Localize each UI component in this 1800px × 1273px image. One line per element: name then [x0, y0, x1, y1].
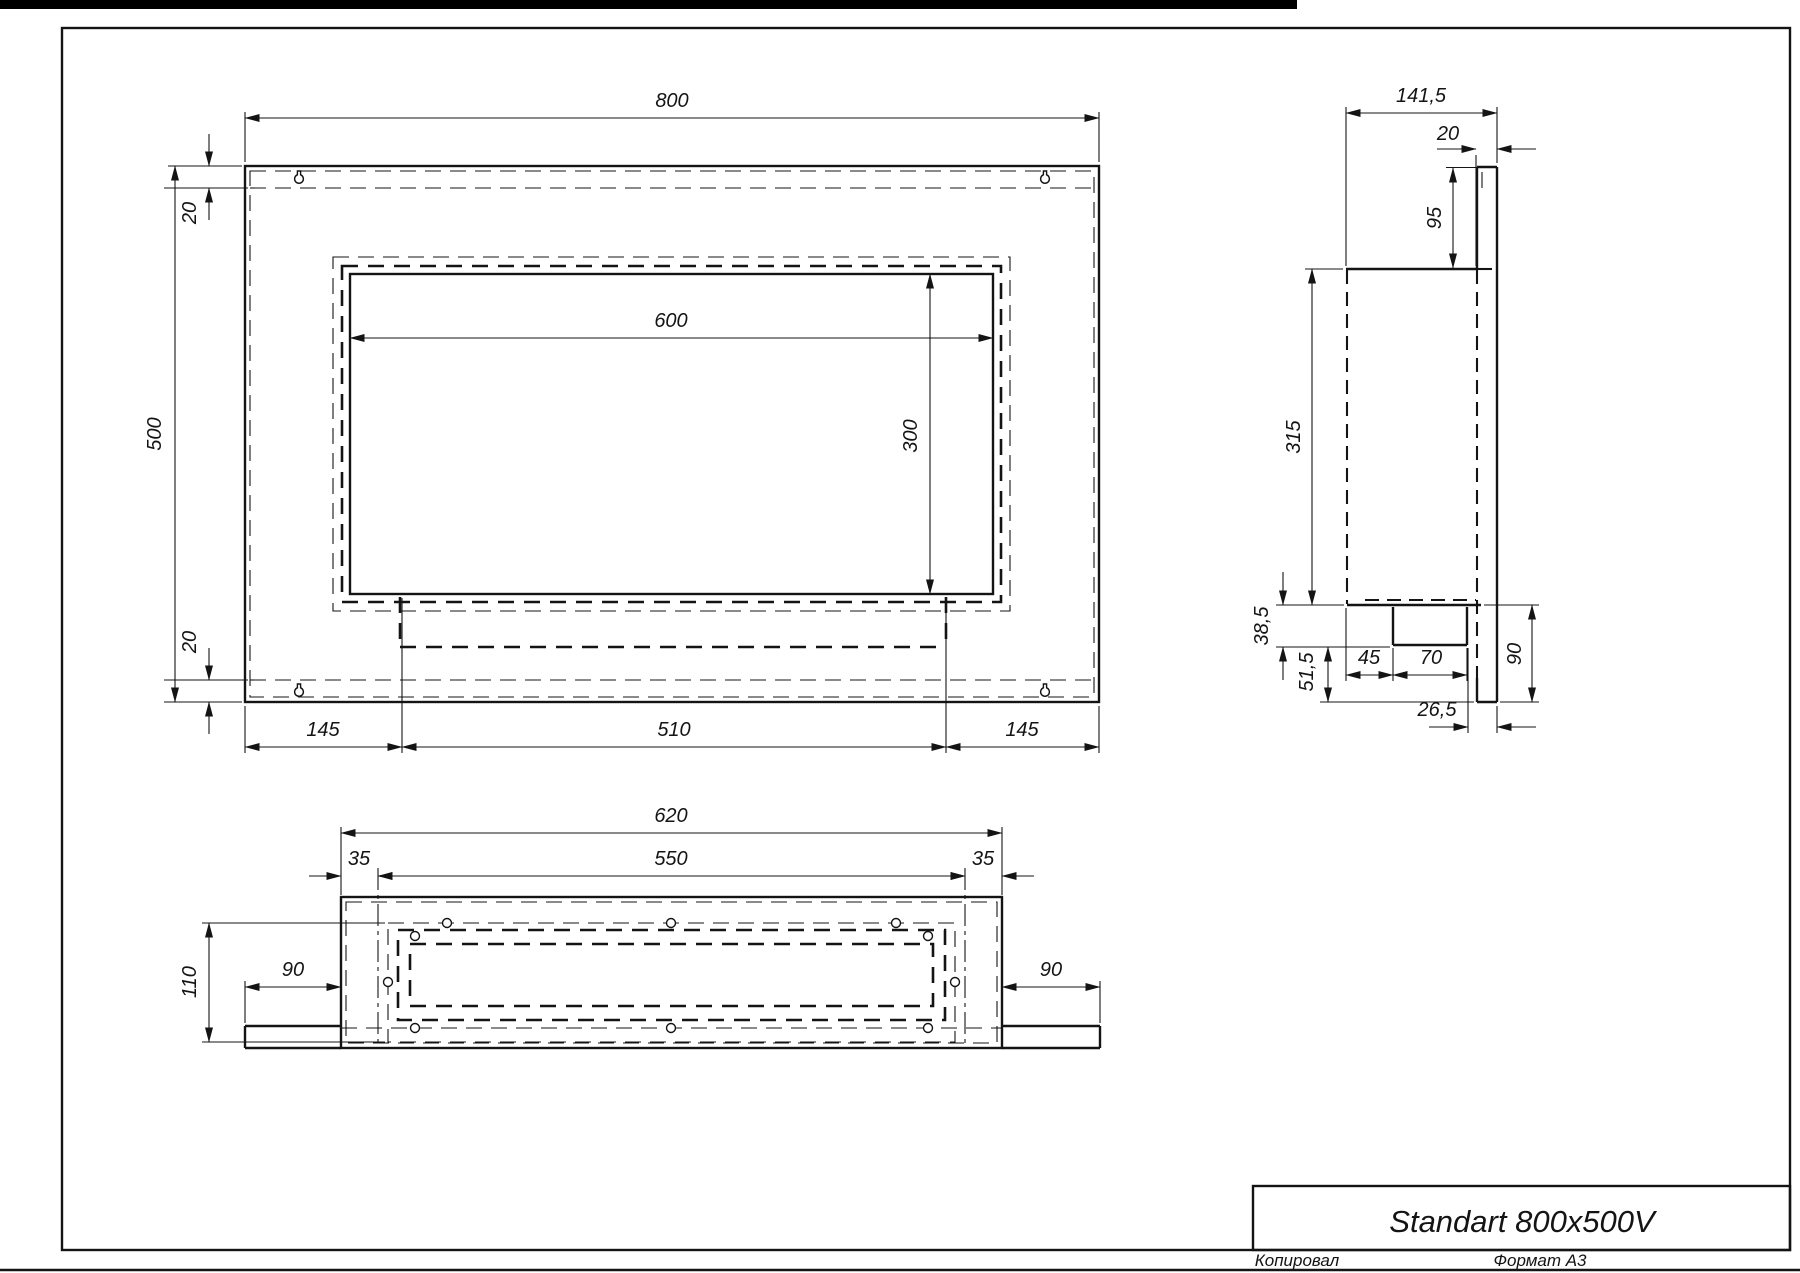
dim-label: 45	[1358, 647, 1381, 669]
dim-bottom-left-inset: 35	[309, 848, 410, 876]
sheet-frame	[62, 28, 1790, 1250]
dim-front-total-width: 800	[245, 90, 1099, 162]
footer-format-label: Формат А3	[1493, 1251, 1587, 1270]
dim-bottom-inner-width: 550	[378, 848, 965, 876]
side-view: 141,5 20 95 315 38,5	[1251, 85, 1539, 733]
dim-label: 145	[306, 719, 340, 741]
keyhole-slot-icon	[295, 684, 304, 696]
sheet-footer: Копировал Формат А3	[1255, 1251, 1587, 1270]
front-panel-hidden-edge	[250, 171, 1094, 697]
drawing-page: 800 500 20 20 600	[0, 0, 1800, 1273]
bottom-left-flange	[245, 1026, 341, 1048]
bottom-view: 620 550 35 35 110 90	[179, 805, 1100, 1048]
dim-bottom-left-flange: 90	[245, 959, 341, 1023]
dim-front-bottom-chain: 145 510 145	[245, 598, 1099, 753]
title-block: Standart 800x500V	[1253, 1186, 1790, 1250]
fastener-holes	[384, 919, 960, 1033]
dim-label: 800	[655, 90, 688, 112]
dim-label: 90	[1504, 643, 1526, 665]
front-view: 800 500 20 20 600	[144, 90, 1099, 753]
dim-label: 141,5	[1396, 85, 1447, 107]
dim-side-total-depth: 141,5	[1346, 85, 1497, 266]
keyhole-slot-icon	[1041, 684, 1050, 696]
dim-side-plate-thickness: 20	[1436, 123, 1536, 266]
side-body	[1346, 269, 1496, 605]
keyhole-slot-icon	[295, 171, 304, 183]
front-outer-panel	[245, 166, 1099, 702]
bottom-right-flange	[1002, 1026, 1100, 1048]
dim-side-lower-height: 90	[1484, 605, 1539, 702]
dim-label: 35	[972, 848, 995, 870]
dim-front-bottom-inset: 20	[164, 631, 248, 734]
drawing-title: Standart 800x500V	[1389, 1204, 1658, 1239]
dim-label: 20	[179, 631, 201, 654]
dim-label: 110	[179, 966, 201, 998]
dim-label: 300	[900, 419, 922, 452]
dim-label: 95	[1424, 206, 1446, 229]
dim-label: 35	[348, 848, 371, 870]
dim-opening-height: 300	[900, 274, 930, 594]
dim-label: 620	[654, 805, 687, 827]
dim-side-tray-front-offset: 45	[1346, 608, 1393, 681]
side-back-plate	[1477, 167, 1497, 702]
side-burner-tray	[1393, 607, 1467, 645]
dim-bottom-right-inset: 35	[933, 848, 1034, 876]
dim-label: 550	[654, 848, 687, 870]
footer-copied-label: Копировал	[1255, 1251, 1340, 1270]
dim-opening-width: 600	[350, 310, 993, 338]
hidden-burner-tray-front	[400, 597, 946, 647]
dim-label: 51,5	[1296, 652, 1318, 692]
dim-side-body-height: 315	[1276, 269, 1344, 605]
dim-label: 20	[1436, 123, 1459, 145]
window-top-bar	[0, 0, 1297, 9]
dim-label: 600	[654, 310, 687, 332]
dim-label: 90	[282, 959, 304, 981]
dim-label: 20	[179, 202, 201, 225]
dim-label: 315	[1283, 419, 1305, 453]
dim-label: 510	[657, 719, 690, 741]
dim-front-total-height: 500	[144, 166, 242, 702]
dim-label: 38,5	[1251, 606, 1273, 646]
dim-side-tray-width: 70	[1393, 647, 1467, 681]
dim-label: 26,5	[1417, 699, 1458, 721]
dim-side-upper-plate: 95	[1424, 168, 1476, 269]
technical-drawing: 800 500 20 20 600	[0, 0, 1800, 1273]
dim-bottom-depth: 110	[179, 923, 385, 1042]
dim-label: 145	[1005, 719, 1039, 741]
dim-front-top-inset: 20	[164, 134, 248, 225]
tray-hidden-wall-inner	[410, 944, 933, 1006]
dim-bottom-right-flange: 90	[1002, 959, 1100, 1023]
dim-label: 500	[144, 417, 166, 450]
dim-label: 90	[1040, 959, 1062, 981]
keyhole-slot-icon	[1041, 171, 1050, 183]
dim-label: 70	[1420, 647, 1442, 669]
